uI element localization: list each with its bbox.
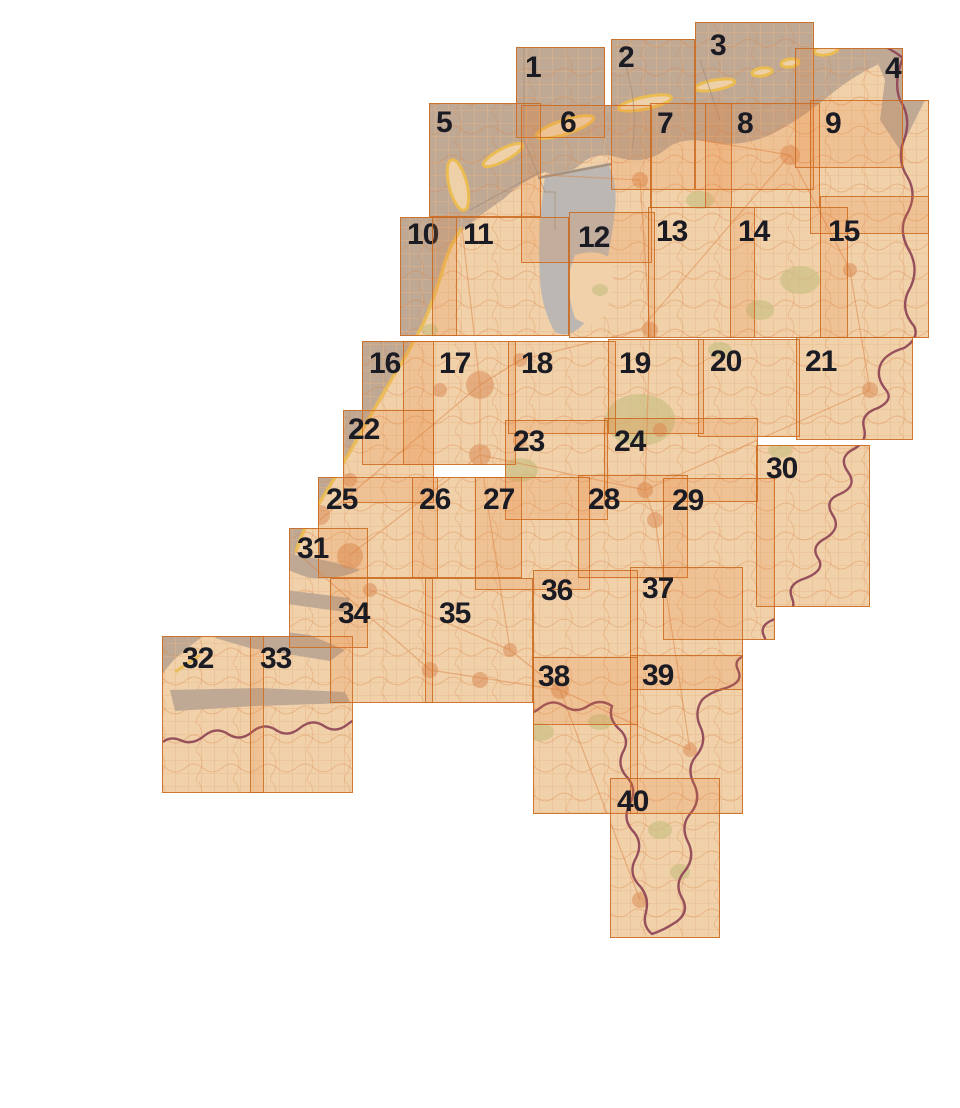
sheet-number-label: 22 [348, 415, 379, 445]
sheet-number-label: 3 [710, 31, 726, 61]
sheet-number-label: 2 [618, 43, 634, 73]
sheet-number-label: 14 [738, 217, 769, 247]
sheet-8-area[interactable]: 8 [705, 103, 820, 208]
sheet-number-label: 19 [619, 349, 650, 379]
sheet-number-label: 12 [578, 223, 609, 253]
sheet-number-label: 35 [439, 599, 470, 629]
sheet-number-label: 11 [463, 220, 493, 250]
sheet-number-label: 32 [182, 644, 213, 674]
sheet-number-label: 31 [297, 534, 328, 564]
sheet-number-label: 33 [260, 644, 291, 674]
sheet-12-area[interactable]: 12 [569, 212, 655, 338]
sheet-number-label: 21 [805, 347, 836, 377]
sheet-30-area[interactable]: 30 [756, 445, 870, 607]
sheet-number-label: 36 [541, 576, 572, 606]
sheet-number-label: 34 [338, 599, 369, 629]
sheet-number-label: 39 [642, 661, 673, 691]
sheet-number-label: 26 [419, 485, 450, 515]
sheet-number-label: 8 [737, 109, 753, 139]
sheet-number-label: 4 [885, 54, 901, 84]
sheet-number-label: 28 [588, 485, 619, 515]
sheet-number-label: 16 [369, 349, 400, 379]
sheet-number-label: 15 [828, 217, 859, 247]
sheet-number-label: 40 [617, 787, 648, 817]
sheet-number-label: 7 [657, 109, 673, 139]
sheet-40-area[interactable]: 40 [610, 778, 720, 938]
sheet-number-label: 25 [326, 485, 357, 515]
sheet-number-label: 24 [614, 427, 645, 457]
sheet-number-label: 38 [538, 662, 569, 692]
sheet-number-label: 6 [560, 108, 576, 138]
sheet-number-label: 27 [483, 485, 514, 515]
sheet-number-label: 9 [825, 109, 841, 139]
sheet-number-label: 18 [521, 349, 552, 379]
sheet-number-label: 5 [436, 108, 452, 138]
sheet-number-label: 13 [656, 217, 687, 247]
sheet-number-label: 29 [672, 486, 703, 516]
sheet-number-label: 1 [525, 53, 541, 83]
sheet-number-label: 37 [642, 574, 673, 604]
sheet-number-label: 17 [439, 349, 470, 379]
sheet-number-label: 30 [766, 454, 797, 484]
sheet-11-area[interactable]: 11 [432, 217, 569, 336]
sheet-34-area[interactable]: 34 [330, 578, 433, 703]
sheet-number-label: 23 [513, 427, 544, 457]
sheet-15-area[interactable]: 15 [820, 196, 929, 338]
map-sheet-index: 1234567891011121314151617181920212223242… [0, 0, 960, 1108]
sheet-32-area[interactable]: 32 [162, 636, 264, 793]
sheet-21-area[interactable]: 21 [796, 337, 913, 440]
sheet-number-label: 20 [710, 347, 741, 377]
sheet-35-area[interactable]: 35 [425, 578, 533, 703]
